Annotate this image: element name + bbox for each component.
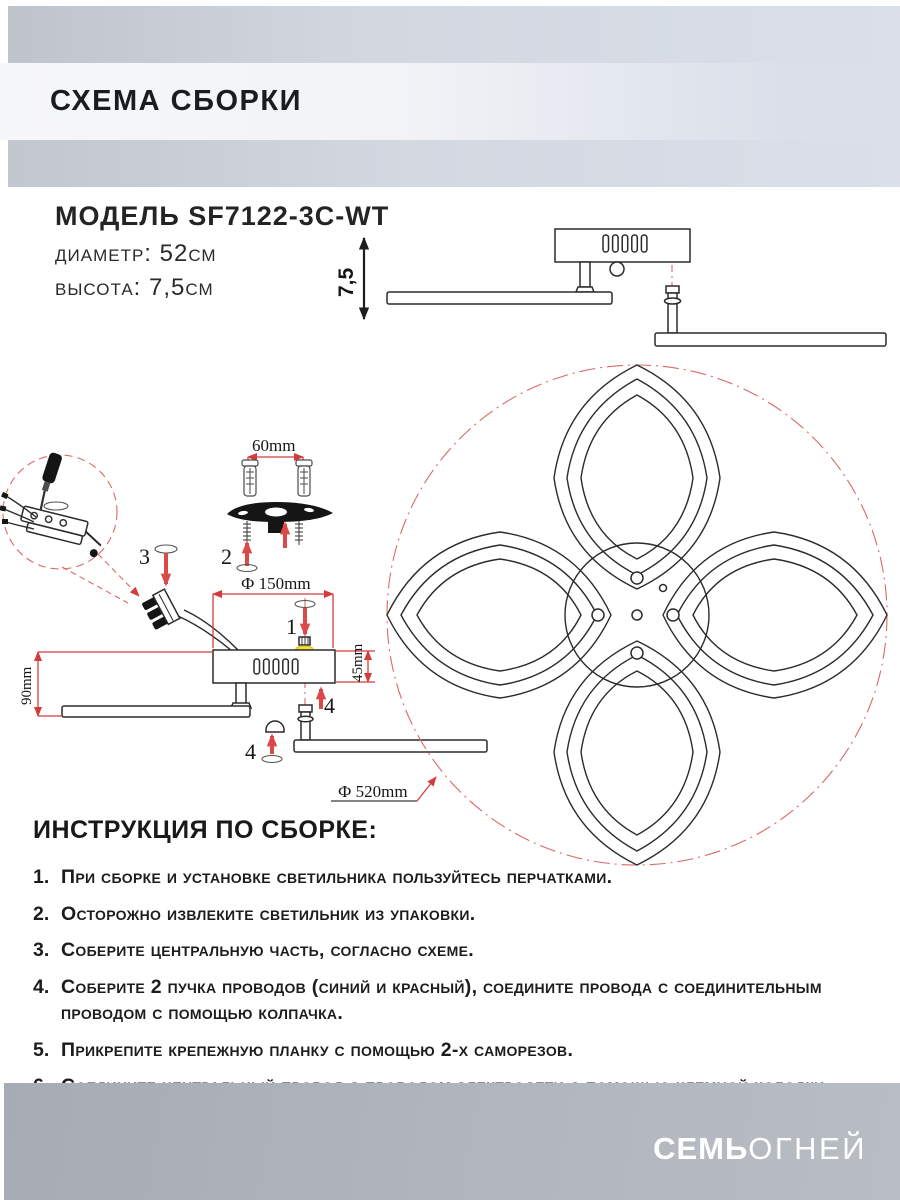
terminal-block-closeup — [16, 506, 105, 558]
mounting-screw-left — [243, 521, 251, 545]
mounting-bracket — [227, 502, 333, 522]
brand-bold-part: СЕМЬ — [653, 1131, 748, 1166]
side-sensor-knob — [610, 262, 624, 276]
wires-closeup — [0, 492, 36, 529]
center-plate-circle — [565, 543, 709, 687]
header-title-band: СХЕМА СБОРКИ — [0, 63, 900, 140]
dim-45-label: 45mm — [350, 643, 366, 682]
side-right-arm-plate — [655, 333, 886, 346]
connector-wire-1 — [178, 616, 232, 651]
instruction-text: Соберите центральную часть, согласно схе… — [61, 938, 887, 964]
instruction-number: 4. — [33, 975, 61, 1026]
instruction-number: 5. — [33, 1038, 61, 1064]
canopy-right-post-cap — [299, 705, 312, 712]
model-info: МОДЕЛЬ SF7122-3C-WT диаметр: 52см высота… — [55, 201, 389, 308]
petal-left — [387, 532, 611, 698]
header-band-bottom — [8, 140, 900, 187]
side-right-post-collar — [665, 298, 681, 304]
instructions-title: ИНСТРУКЦИЯ ПО СБОРКЕ: — [33, 816, 887, 845]
bubble-leader-2 — [62, 567, 128, 603]
canopy-right-arm-plate — [294, 740, 487, 752]
instruction-number: 2. — [33, 902, 61, 928]
instruction-item: 4. Соберите 2 пучка проводов (синий и кр… — [33, 975, 887, 1026]
canopy-right-post-collar — [298, 716, 313, 722]
side-right-post-cap — [666, 286, 679, 293]
rotate-symbol — [295, 601, 315, 608]
side-left-stem-foot — [576, 287, 594, 292]
detail-bubble — [0, 452, 139, 603]
bubble-leader-1 — [98, 554, 139, 596]
mounting-screw-right — [295, 521, 303, 545]
center-mount-holes — [592, 572, 679, 659]
bracket-center-hole — [265, 508, 287, 517]
instruction-item: 1. При сборке и установке светильника по… — [33, 865, 887, 891]
rotate-symbol — [44, 502, 68, 510]
dim-150: Ф 150mm — [213, 574, 333, 648]
detail-bubble-circle — [3, 455, 117, 569]
bracket-nipple — [268, 521, 284, 533]
model-diameter: диаметр: 52см — [55, 240, 389, 268]
canopy-left-arm-plate — [62, 706, 250, 717]
connector-wire-2 — [184, 610, 238, 650]
step3-connector: 3 — [139, 544, 238, 651]
canopy-right-post — [301, 712, 310, 740]
dim-520-label: Ф 520mm — [338, 782, 408, 801]
model-name: МОДЕЛЬ SF7122-3C-WT — [55, 201, 389, 232]
instruction-item: 2. Осторожно извлеките светильник из упа… — [33, 902, 887, 928]
page-title: СХЕМА СБОРКИ — [50, 85, 302, 118]
screwdriver-icon — [31, 452, 63, 516]
step2-bracket-assembly: 60mm — [221, 436, 333, 572]
side-left-arm-plate — [387, 292, 612, 304]
dim-45: 45mm — [336, 643, 375, 682]
wall-plug-left — [242, 460, 258, 496]
petal-top — [554, 365, 720, 589]
rotate-symbol — [155, 545, 177, 553]
step2-number: 2 — [221, 544, 232, 569]
highlight-marker — [296, 646, 313, 652]
canopy-vents — [254, 659, 298, 674]
dim-520: Ф 520mm — [331, 777, 436, 801]
canopy-box — [213, 650, 335, 683]
connector-block — [140, 589, 179, 631]
fixture-side-view: 7,5 — [335, 229, 886, 346]
instructions-section: ИНСТРУКЦИЯ ПО СБОРКЕ: 1. При сборке и ус… — [33, 816, 887, 1111]
instruction-text: Прикрепите крепежную планку с помощью 2-… — [61, 1038, 887, 1064]
fixture-top-view — [387, 365, 887, 865]
model-height: высота: 7,5см — [55, 274, 389, 302]
canopy-left-stem-foot — [231, 703, 251, 708]
instruction-text: При сборке и установке светильника польз… — [61, 865, 887, 891]
step1-center-screw: 1 — [286, 598, 315, 737]
instruction-number: 3. — [33, 938, 61, 964]
side-right-post — [668, 293, 677, 333]
dim-520-leader — [417, 777, 436, 801]
instruction-text: Соберите 2 пучка проводов (синий и красн… — [61, 975, 887, 1026]
canopy-left-stem — [236, 683, 246, 704]
small-screw — [299, 637, 310, 645]
canopy-assembly-view: 45mm 90mm 4 4 — [19, 643, 487, 764]
dim-90-label: 90mm — [19, 666, 35, 705]
step1-number: 1 — [286, 614, 297, 639]
instruction-item: 3. Соберите центральную часть, согласно … — [33, 938, 887, 964]
header-band-top — [8, 6, 900, 63]
dim-60-label: 60mm — [252, 436, 295, 455]
diameter-circle — [387, 365, 887, 865]
dim-150-label: Ф 150mm — [241, 574, 311, 593]
footer-band: СЕМЬОГНЕЙ — [4, 1083, 900, 1200]
side-canopy-box — [555, 229, 690, 262]
dim-90: 90mm — [19, 652, 213, 716]
step4-bottom-number: 4 — [245, 739, 256, 764]
side-canopy-vents — [603, 235, 647, 252]
rotate-symbol — [262, 756, 282, 763]
brand-logo: СЕМЬОГНЕЙ — [653, 1131, 867, 1167]
brand-light-part: ОГНЕЙ — [748, 1131, 867, 1166]
instruction-item: 5. Прикрепите крепежную планку с помощью… — [33, 1038, 887, 1064]
instruction-text: Осторожно извлеките светильник из упаков… — [61, 902, 887, 928]
step3-number: 3 — [139, 544, 150, 569]
rotate-symbol — [237, 565, 257, 572]
petal-right — [663, 532, 887, 698]
step4-right-number: 4 — [324, 693, 335, 718]
side-left-stem — [580, 262, 590, 287]
cap-nut — [266, 721, 284, 732]
wall-plug-right — [296, 460, 312, 496]
instruction-number: 1. — [33, 865, 61, 891]
